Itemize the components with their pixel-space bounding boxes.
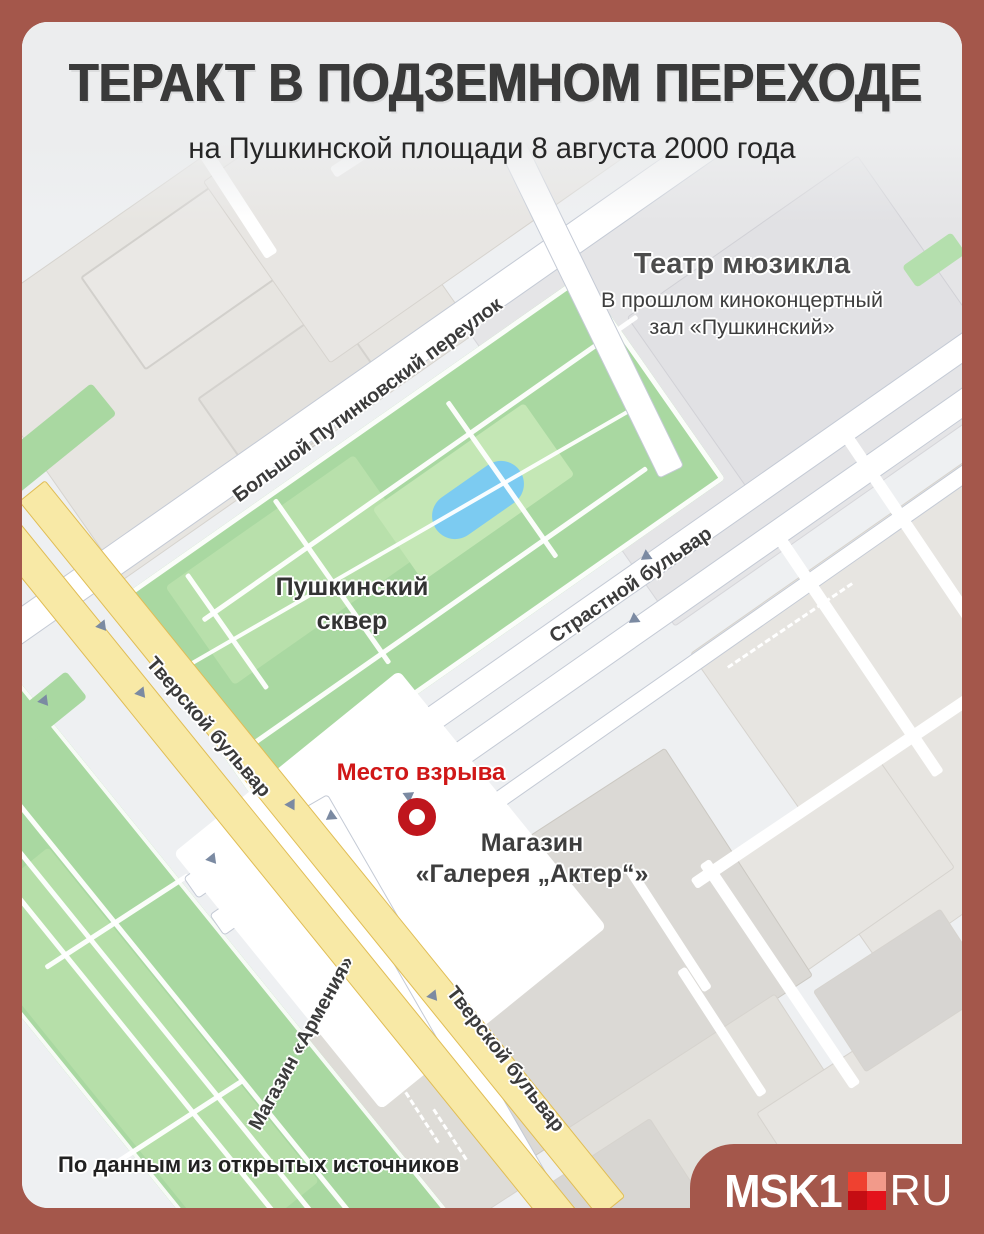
- poi-label-gallery-actor: Магазин «Галерея „Актер“»: [352, 828, 712, 890]
- brand-tab: MSK1 RU: [690, 1144, 984, 1234]
- logo-text: MSK1: [724, 1164, 842, 1218]
- logo-square: [848, 1172, 867, 1191]
- msk1-logo: MSK1 RU: [721, 1164, 953, 1218]
- theater-subtitle-line2: зал «Пушкинский»: [532, 314, 952, 341]
- park-label-line2: сквер: [222, 604, 482, 638]
- logo-square: [848, 1191, 867, 1210]
- infographic: { "colors": { "frame_brown": "#a4574b", …: [0, 0, 984, 1230]
- logo-suffix: RU: [889, 1166, 952, 1216]
- blast-site-label: Место взрыва: [271, 759, 571, 787]
- blast-site-marker-icon: [398, 798, 436, 836]
- theater-subtitle-line1: В прошлом киноконцертный: [532, 287, 952, 314]
- logo-square: [867, 1191, 886, 1210]
- source-note: По данным из открытых источников: [58, 1152, 459, 1178]
- theater-title: Театр мюзикла: [532, 248, 952, 281]
- page-subtitle: на Пушкинской площади 8 августа 2000 год…: [36, 132, 948, 166]
- map-card: Большой Путинковский переулок Страстной …: [22, 22, 962, 1208]
- logo-pixel-square-icon: [848, 1172, 886, 1210]
- logo-square: [867, 1172, 886, 1191]
- poi-label-theater: Театр мюзикла В прошлом киноконцертный з…: [532, 248, 952, 341]
- gallery-label-line2: «Галерея „Актер“»: [352, 859, 712, 890]
- poi-label-pushkinsky-park: Пушкинский сквер: [222, 570, 482, 638]
- park-label-line1: Пушкинский: [222, 570, 482, 604]
- page-title: ТЕРАКТ В ПОДЗЕМНОМ ПЕРЕХОДЕ: [69, 52, 915, 114]
